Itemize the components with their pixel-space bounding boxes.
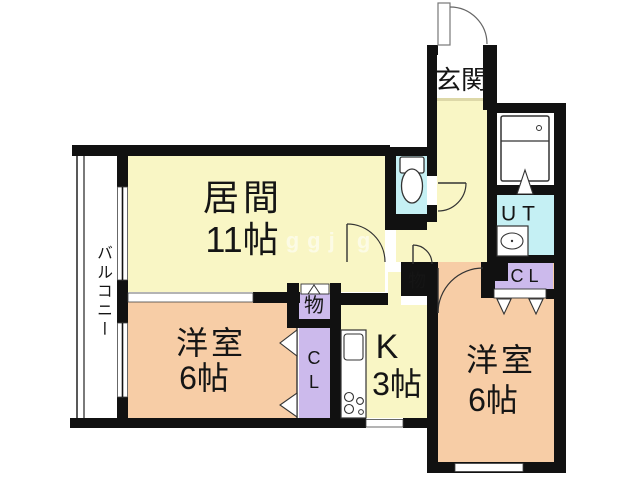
entrance-door-leaf (438, 3, 450, 45)
entrance-door-arc (450, 7, 487, 44)
closet-right-name: CL (510, 267, 543, 285)
floor-plan: 居間 11帖 洋室 6帖 洋室 6帖 K 3帖 玄関 バルコニー UT CL C… (0, 0, 640, 480)
window-bedroomR (455, 464, 523, 472)
balcony-name: バルコニー (94, 245, 110, 340)
living-room-size: 11帖 (205, 222, 278, 258)
bedroom-left-name: 洋室 (176, 327, 246, 359)
clR-door-tri-1 (497, 299, 511, 314)
sliding-door-band (128, 293, 253, 302)
toilet-bowl (402, 169, 423, 203)
toilet-door-arc (438, 183, 466, 211)
clR-door-band (494, 289, 546, 298)
closet-left-name: CL (305, 348, 323, 396)
bedroom-right-size: 6帖 (468, 384, 518, 416)
bedroomR-door-arc (438, 268, 483, 313)
entrance-name: 玄関 (435, 67, 487, 93)
clL-door-tri-1 (280, 330, 297, 356)
watermark: ggj g (286, 228, 379, 254)
bedroom-right-name: 洋室 (466, 344, 536, 376)
utility-name: UT (501, 204, 541, 225)
kitchen-sink (344, 334, 363, 360)
kitchen-name: K (376, 330, 399, 364)
storage-right-name: 物 (408, 272, 426, 290)
kitchen-door-arc (413, 245, 432, 264)
clR-door-tri-2 (529, 299, 543, 314)
bedroom-left-size: 6帖 (179, 362, 229, 394)
kitchen-size: 3帖 (372, 368, 422, 400)
living-room-name: 居間 (203, 180, 283, 216)
window-kitchen (366, 420, 403, 428)
storage-left-name: 物 (304, 296, 324, 316)
clL-door-tri-2 (280, 393, 297, 417)
